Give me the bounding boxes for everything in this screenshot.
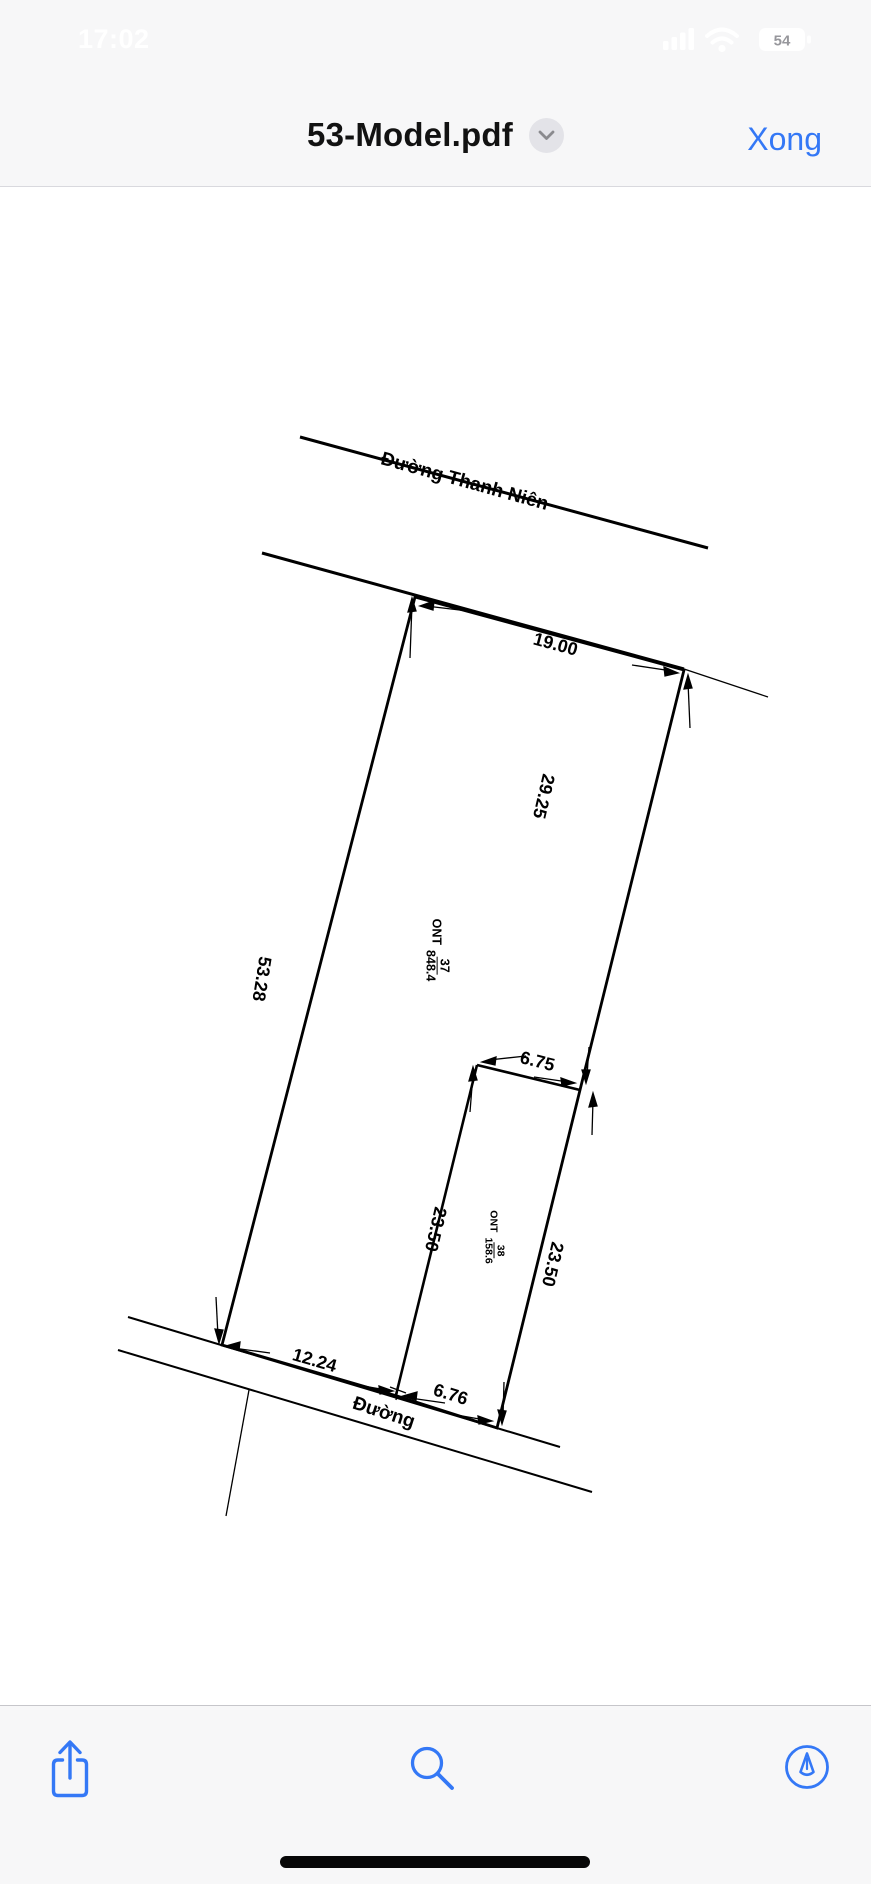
document-title: 53-Model.pdf bbox=[307, 116, 513, 154]
share-button[interactable] bbox=[47, 1738, 93, 1800]
title-menu-button[interactable] bbox=[529, 118, 564, 153]
main-parcel-number: 37 bbox=[437, 957, 451, 975]
top-road-lines bbox=[262, 437, 768, 697]
top-road-name: Đường Thanh Niên bbox=[378, 448, 550, 514]
wifi-icon bbox=[707, 30, 737, 53]
iphone-screen: 17:02 54 53-Model.pdf bbox=[0, 0, 871, 1884]
status-time: 17:02 bbox=[78, 24, 150, 55]
battery-icon: 54 bbox=[759, 28, 811, 51]
bottom-road-lines bbox=[118, 1317, 592, 1516]
search-icon bbox=[413, 1749, 453, 1789]
share-icon bbox=[54, 1742, 87, 1796]
dim-left-side: 53.28 bbox=[249, 955, 276, 1003]
markup-button[interactable] bbox=[784, 1744, 832, 1792]
battery-percent: 54 bbox=[774, 33, 791, 50]
main-parcel-outline bbox=[222, 597, 684, 1428]
pdf-page[interactable]: Đường Thanh Niên Đường 19.00 29.25 53.28… bbox=[0, 187, 871, 1705]
main-parcel-area: 848.4 bbox=[423, 950, 436, 981]
dim-inner-top: 6.75 bbox=[518, 1047, 557, 1075]
main-parcel-code: ONT bbox=[430, 919, 444, 945]
inner-parcel-area: 158.6 bbox=[482, 1237, 493, 1263]
signal-icon bbox=[663, 28, 694, 50]
inner-parcel-code: ONT bbox=[488, 1210, 500, 1232]
search-button[interactable] bbox=[408, 1744, 458, 1794]
inner-parcel-label: ONT 38 158.6 bbox=[482, 1210, 505, 1263]
markup-icon bbox=[787, 1747, 828, 1788]
dim-inner-left: 23.50 bbox=[421, 1205, 451, 1253]
dim-bottom-right: 6.76 bbox=[431, 1380, 470, 1409]
home-indicator[interactable] bbox=[280, 1856, 590, 1868]
dimension-arrows bbox=[215, 598, 692, 1424]
inner-parcel-number: 38 bbox=[494, 1243, 506, 1259]
status-icons: 54 bbox=[663, 27, 813, 55]
dim-frontage-top: 19.00 bbox=[531, 629, 580, 660]
chevron-down-icon bbox=[538, 130, 555, 141]
dim-right-upper: 29.25 bbox=[529, 772, 559, 820]
main-parcel-label: ONT 37 848.4 bbox=[423, 919, 450, 982]
top-chrome: 17:02 54 53-Model.pdf bbox=[0, 0, 871, 187]
done-button[interactable]: Xong bbox=[747, 121, 822, 158]
